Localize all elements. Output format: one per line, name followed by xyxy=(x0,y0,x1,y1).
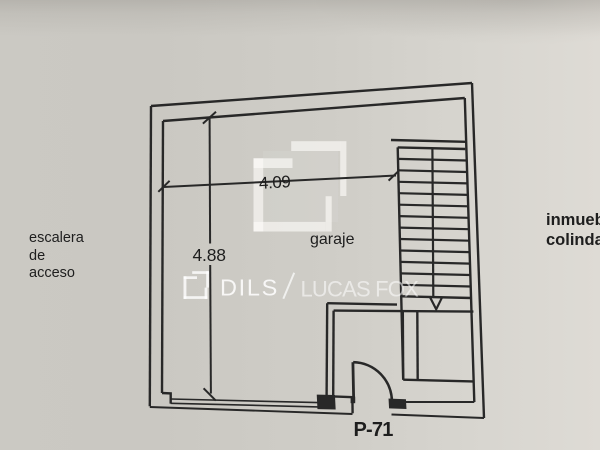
svg-text:DILS: DILS xyxy=(220,275,279,301)
svg-text:LUCAS FOX: LUCAS FOX xyxy=(301,277,420,302)
